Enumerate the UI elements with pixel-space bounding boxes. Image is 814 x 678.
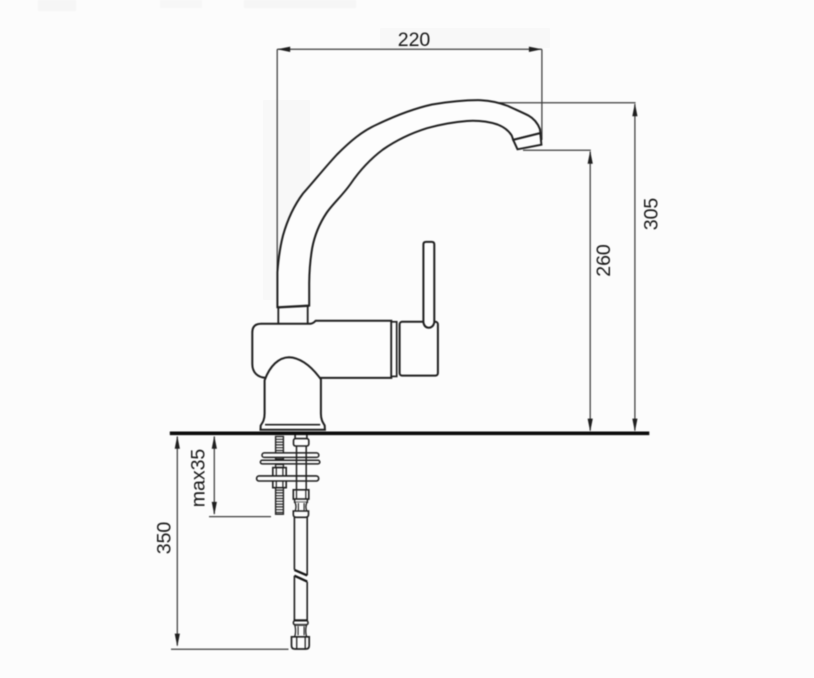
svg-text:220: 220 bbox=[398, 29, 431, 51]
svg-text:max35: max35 bbox=[188, 449, 210, 508]
svg-text:260: 260 bbox=[593, 244, 615, 277]
svg-text:350: 350 bbox=[154, 522, 176, 555]
svg-text:305: 305 bbox=[641, 198, 663, 231]
